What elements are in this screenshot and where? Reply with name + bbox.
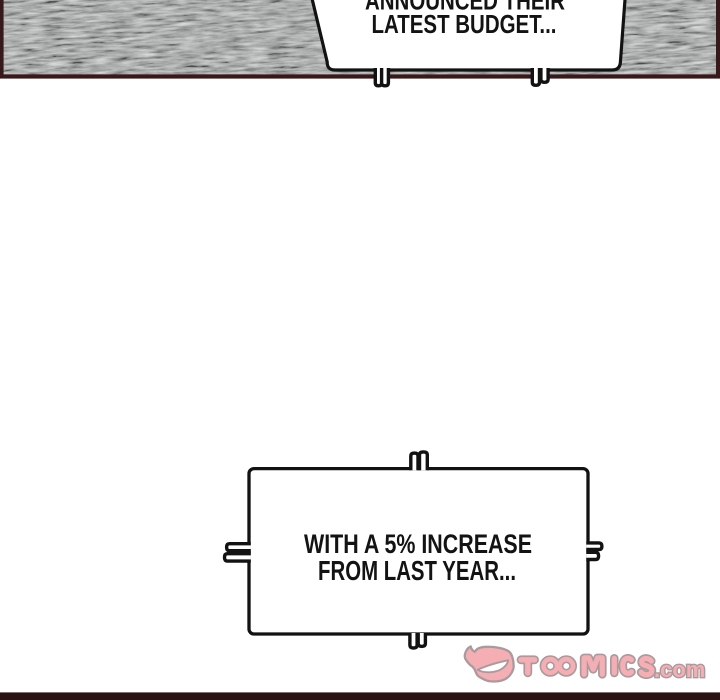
svg-text:.com: .com xyxy=(654,657,705,682)
svg-text:LATEST BUDGET...: LATEST BUDGET... xyxy=(372,9,557,39)
svg-text:FROM LAST YEAR...: FROM LAST YEAR... xyxy=(318,555,516,586)
